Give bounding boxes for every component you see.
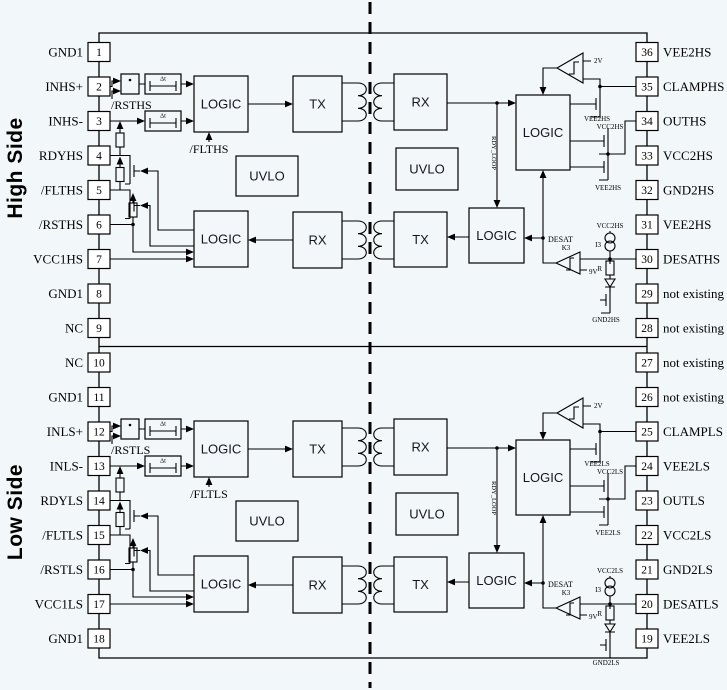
fault-signal-label: /FLTHS: [190, 142, 229, 156]
current-source-label: I3: [595, 241, 601, 249]
pin-number-31: 31: [641, 220, 653, 232]
filter-dt-label: Δt: [160, 113, 166, 120]
pin-22: 22VCC2LS: [636, 526, 711, 545]
pin-label-8: GND1: [48, 286, 83, 301]
pin-number-26: 26: [641, 392, 653, 404]
pin-5: 5/FLTHS: [41, 181, 110, 200]
low-side-circuit-shapes: [110, 398, 636, 658]
pin-17: 17VCC1LS: [35, 595, 110, 614]
pin-number-34: 34: [641, 116, 653, 128]
rdy-loop-label: RDY_LOOP: [490, 136, 497, 170]
pin-label-36: VEE2HS: [663, 45, 711, 60]
logic-mid-label: LOGIC: [476, 228, 516, 243]
rx-top-label: RX: [411, 95, 429, 110]
pin-number-27: 27: [641, 358, 653, 370]
pin-label-33: VCC2HS: [663, 148, 713, 163]
pin-number-19: 19: [641, 634, 653, 646]
logic-output-label: LOGIC: [523, 470, 563, 485]
vcc2-out-label: VCC2LS: [597, 468, 623, 476]
pin-number-16: 16: [93, 565, 105, 577]
pin-label-12: INLS+: [47, 424, 83, 439]
pin-29: 29not existing: [636, 284, 725, 303]
pin-label-2: INHS+: [45, 79, 83, 94]
pin-1: 1GND1: [48, 43, 110, 62]
rx-bottom-label: RX: [308, 233, 326, 248]
pin-number-22: 22: [641, 530, 653, 542]
pin-number-8: 8: [96, 289, 102, 301]
pin-label-23: OUTLS: [663, 493, 705, 508]
vee2-out-label: VEE2LS: [595, 529, 620, 537]
pin-number-14: 14: [93, 496, 105, 508]
pin-30: 30DESATHS: [636, 250, 720, 269]
logic-fault-label: LOGIC: [201, 577, 241, 592]
filter-dt-label: Δt: [160, 76, 166, 83]
pin-34: 34OUTHS: [636, 112, 706, 131]
pin-23: 23OUTLS: [636, 491, 705, 510]
pin-number-23: 23: [641, 496, 653, 508]
clamp-ref-label: 2V: [594, 57, 603, 65]
pin-7: 7VCC1HS: [33, 250, 110, 269]
logic-mid-label: LOGIC: [476, 573, 516, 588]
vee2-clamp-label: VEE2HS: [584, 115, 610, 123]
pin-label-4: RDYHS: [39, 148, 83, 163]
isolation-transformer-bottom: [342, 221, 394, 259]
desat-signal-label: DESAT: [548, 235, 573, 244]
pin-28: 28not existing: [636, 319, 725, 338]
pin-label-30: DESATHS: [663, 252, 720, 267]
rx-bottom-label: RX: [308, 578, 326, 593]
gnd2-label: GND2LS: [593, 659, 620, 667]
pin-10: 10NC: [65, 353, 110, 372]
pin-number-30: 30: [641, 254, 653, 266]
pin-number-33: 33: [641, 151, 653, 163]
resistor-label: R: [597, 265, 602, 273]
pin-number-29: 29: [641, 289, 653, 301]
pin-21: 21GND2LS: [636, 560, 713, 579]
uvlo-right-label: UVLO: [409, 507, 444, 522]
pin-number-24: 24: [641, 461, 653, 473]
current-source-label: I3: [595, 586, 601, 594]
pin-2: 2INHS+: [45, 77, 110, 96]
pin-label-15: /FLTLS: [42, 528, 83, 543]
pin-label-25: CLAMPLS: [663, 424, 723, 439]
pin-number-21: 21: [641, 565, 653, 577]
logic-input-label: LOGIC: [201, 442, 241, 457]
pin-number-7: 7: [96, 254, 102, 266]
low-side-labels: LOGIC TX RX UVLO UVLO LOGIC RX TX LOGIC …: [111, 402, 623, 667]
uvlo-right-label: UVLO: [409, 162, 444, 177]
vcc2-desat-label: VCC2LS: [597, 567, 623, 575]
pin-13: 13INLS-: [50, 457, 110, 476]
pin-number-2: 2: [96, 82, 102, 94]
pin-label-17: VCC1LS: [35, 597, 83, 612]
desat-comparator: [556, 252, 580, 274]
pin-36: 36VEE2HS: [636, 43, 711, 62]
vee2-clamp-label: VEE2LS: [584, 460, 609, 468]
pin-11: 11GND1: [48, 388, 110, 407]
pin-label-14: RDYLS: [40, 493, 83, 508]
pin-label-19: VEE2LS: [663, 631, 710, 646]
pin-number-15: 15: [93, 530, 105, 542]
pin-25: 25CLAMPLS: [636, 422, 723, 441]
pin-number-12: 12: [93, 427, 105, 439]
rst-gate-label: /RSTHS: [111, 98, 152, 112]
pin-3: 3INHS-: [48, 112, 110, 131]
pin-number-3: 3: [96, 116, 102, 128]
pin-label-3: INHS-: [48, 114, 83, 129]
pin-label-6: /RSTHS: [39, 217, 83, 232]
pin-number-4: 4: [96, 151, 102, 163]
filter-dt-label: Δt: [160, 421, 166, 428]
desat-ref-label: 9V: [589, 268, 598, 276]
pin-19: 19VEE2LS: [636, 629, 710, 648]
pin-number-17: 17: [93, 599, 105, 611]
pin-number-11: 11: [93, 392, 104, 404]
pin-number-13: 13: [93, 461, 105, 473]
pin-label-29: not existing: [663, 286, 725, 301]
pin-14: 14RDYLS: [40, 491, 110, 510]
comparator-name-label: K3: [562, 589, 571, 597]
block-diagram: LOGIC TX RX UVLO UVLO LOGIC RX TX LOGIC …: [0, 0, 727, 690]
pin-label-10: NC: [65, 355, 83, 370]
pin-26: 26not existing: [636, 388, 725, 407]
pin-number-5: 5: [96, 185, 102, 197]
clamp-ref-label: 2V: [594, 402, 603, 410]
uvlo-left-label: UVLO: [249, 169, 284, 184]
vee2-out-label: VEE2HS: [595, 184, 621, 192]
logic-input-label: LOGIC: [201, 97, 241, 112]
pin-number-1: 1: [96, 47, 102, 59]
pin-label-13: INLS-: [50, 459, 83, 474]
pin-label-7: VCC1HS: [33, 252, 83, 267]
tx-bottom-label: TX: [412, 232, 429, 247]
rx-top-label: RX: [411, 440, 429, 455]
pin-number-32: 32: [641, 185, 653, 197]
filter-dt-label: Δt: [160, 458, 166, 465]
pin-label-1: GND1: [48, 45, 83, 60]
pin-label-9: NC: [65, 321, 83, 336]
pin-32: 32GND2HS: [636, 181, 714, 200]
pin-label-27: not existing: [663, 355, 725, 370]
resistor-label: R: [597, 610, 602, 618]
comparator-name-label: K3: [562, 244, 571, 252]
pin-number-18: 18: [93, 634, 105, 646]
pin-9: 9NC: [65, 319, 110, 338]
pin-label-20: DESATLS: [663, 597, 719, 612]
pin-16: 16/RSTLS: [40, 560, 110, 579]
pin-27: 27not existing: [636, 353, 725, 372]
pin-label-16: /RSTLS: [40, 562, 83, 577]
pin-label-31: VEE2HS: [663, 217, 711, 232]
desat-signal-label: DESAT: [548, 580, 573, 589]
pin-label-21: GND2LS: [663, 562, 713, 577]
pin-8: 8GND1: [48, 284, 110, 303]
input-gate-block: [121, 74, 139, 94]
pin-number-9: 9: [96, 323, 102, 335]
pin-number-20: 20: [641, 599, 653, 611]
pin-number-36: 36: [641, 47, 653, 59]
pin-18: 18GND1: [48, 629, 110, 648]
clamp-comparator: [557, 53, 583, 83]
pin-label-35: CLAMPHS: [663, 79, 724, 94]
pin-label-22: VCC2LS: [663, 528, 711, 543]
pin-15: 15/FLTLS: [42, 526, 110, 545]
pin-label-5: /FLTHS: [41, 183, 83, 198]
vcc2-desat-label: VCC2HS: [597, 222, 624, 230]
pin-label-26: not existing: [663, 390, 725, 405]
pin-31: 31VEE2HS: [636, 215, 711, 234]
pin-label-11: GND1: [48, 390, 83, 405]
gnd2-label: GND2HS: [592, 316, 620, 324]
uvlo-left-label: UVLO: [249, 514, 284, 529]
fault-ready-cluster: [110, 121, 194, 262]
pin-number-10: 10: [93, 358, 105, 370]
desat-diode: [605, 279, 615, 287]
pin-20: 20DESATLS: [636, 595, 719, 614]
pin-6: 6/RSTHS: [39, 215, 110, 234]
pin-24: 24VEE2LS: [636, 457, 710, 476]
pin-35: 35CLAMPHS: [636, 77, 724, 96]
desat-ref-label: 9V: [589, 613, 598, 621]
rst-gate-label: /RSTLS: [111, 443, 150, 457]
pin-label-24: VEE2LS: [663, 459, 710, 474]
pin-label-32: GND2HS: [663, 183, 714, 198]
pin-label-28: not existing: [663, 321, 725, 336]
low-side-title: Low Side: [4, 464, 27, 560]
logic-fault-label: LOGIC: [201, 232, 241, 247]
rdy-loop-label: RDY_LOOP: [490, 481, 497, 515]
fault-signal-label: /FLTLS: [190, 487, 228, 501]
pin-number-28: 28: [641, 323, 653, 335]
tx-top-label: TX: [309, 97, 326, 112]
isolation-transformer-top: [342, 83, 394, 121]
pin-number-25: 25: [641, 427, 653, 439]
vcc2-out-label: VCC2HS: [597, 123, 624, 131]
pin-number-35: 35: [641, 82, 653, 94]
half-circuit-shapes: [110, 53, 636, 313]
logic-output-label: LOGIC: [523, 125, 563, 140]
pin-33: 33VCC2HS: [636, 146, 713, 165]
pin-label-34: OUTHS: [663, 114, 706, 129]
high-side-title: High Side: [4, 117, 27, 218]
high-side-labels: LOGIC TX RX UVLO UVLO LOGIC RX TX LOGIC …: [111, 57, 624, 324]
pin-label-18: GND1: [48, 631, 83, 646]
pin-12: 12INLS+: [47, 422, 110, 441]
tx-top-label: TX: [309, 442, 326, 457]
secondary-side-wiring: [447, 53, 636, 313]
schematic-canvas: LOGIC TX RX UVLO UVLO LOGIC RX TX LOGIC …: [0, 0, 727, 690]
tx-bottom-label: TX: [412, 577, 429, 592]
pin-number-6: 6: [96, 220, 102, 232]
pin-4: 4RDYHS: [39, 146, 110, 165]
